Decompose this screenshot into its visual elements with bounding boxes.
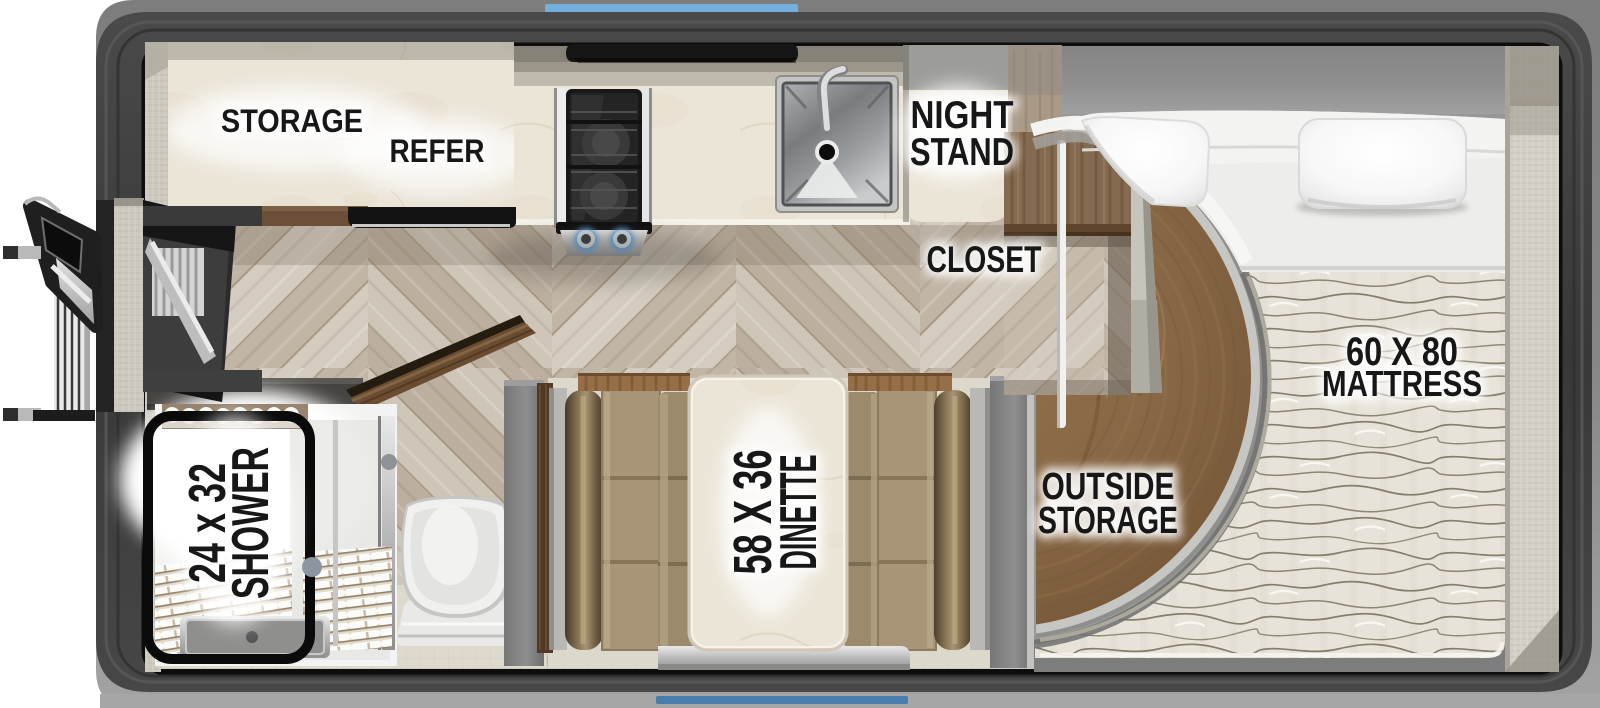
svg-text:SHOWER: SHOWER — [222, 447, 280, 599]
svg-text:STORAGE: STORAGE — [221, 103, 363, 139]
svg-text:MATTRESS: MATTRESS — [1322, 363, 1482, 404]
svg-text:DINETTE: DINETTE — [770, 455, 828, 570]
svg-text:STORAGE: STORAGE — [1038, 500, 1178, 542]
svg-text:CLOSET: CLOSET — [927, 239, 1042, 280]
svg-text:STAND: STAND — [910, 131, 1014, 174]
svg-text:REFER: REFER — [390, 133, 485, 169]
